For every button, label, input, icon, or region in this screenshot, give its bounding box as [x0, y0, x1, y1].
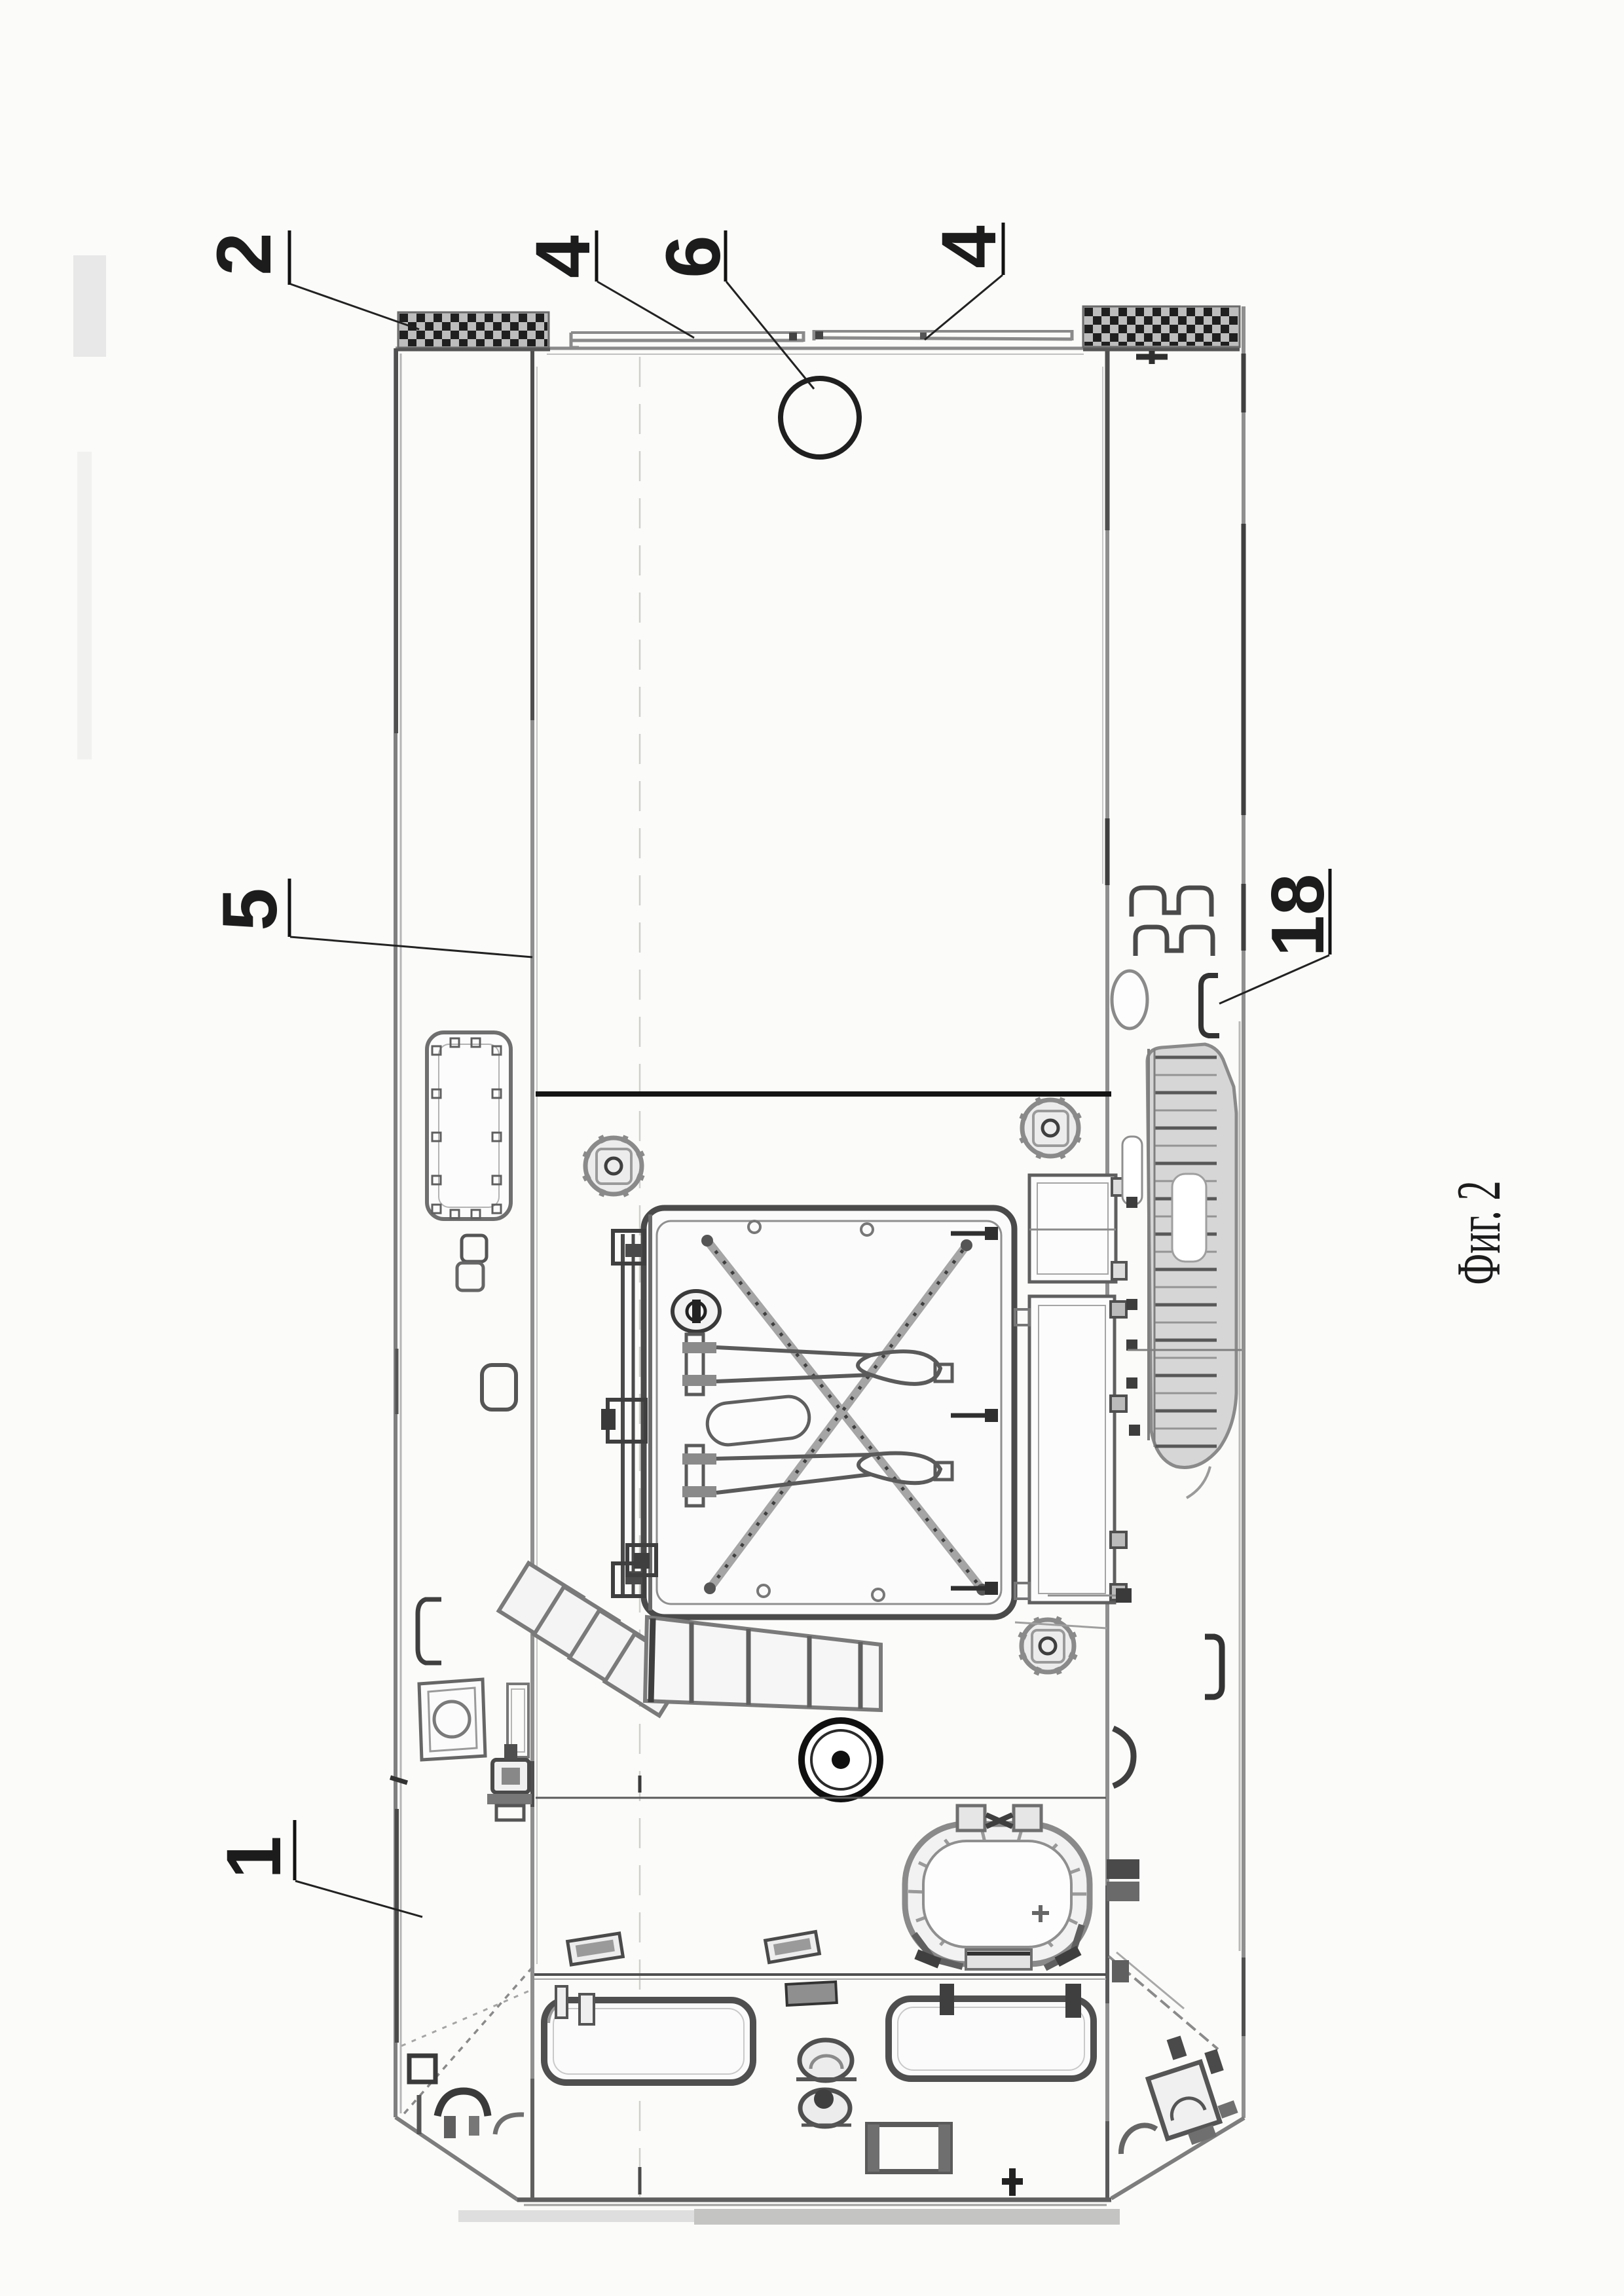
svg-text:1: 1	[211, 1836, 297, 1879]
svg-text:4: 4	[926, 225, 1012, 268]
svg-text:5: 5	[207, 888, 293, 931]
svg-text:18: 18	[1257, 874, 1340, 957]
svg-text:Фиг. 2: Фиг. 2	[1445, 1180, 1514, 1285]
svg-text:4: 4	[520, 235, 606, 278]
svg-text:2: 2	[201, 232, 287, 276]
svg-text:6: 6	[650, 235, 737, 278]
